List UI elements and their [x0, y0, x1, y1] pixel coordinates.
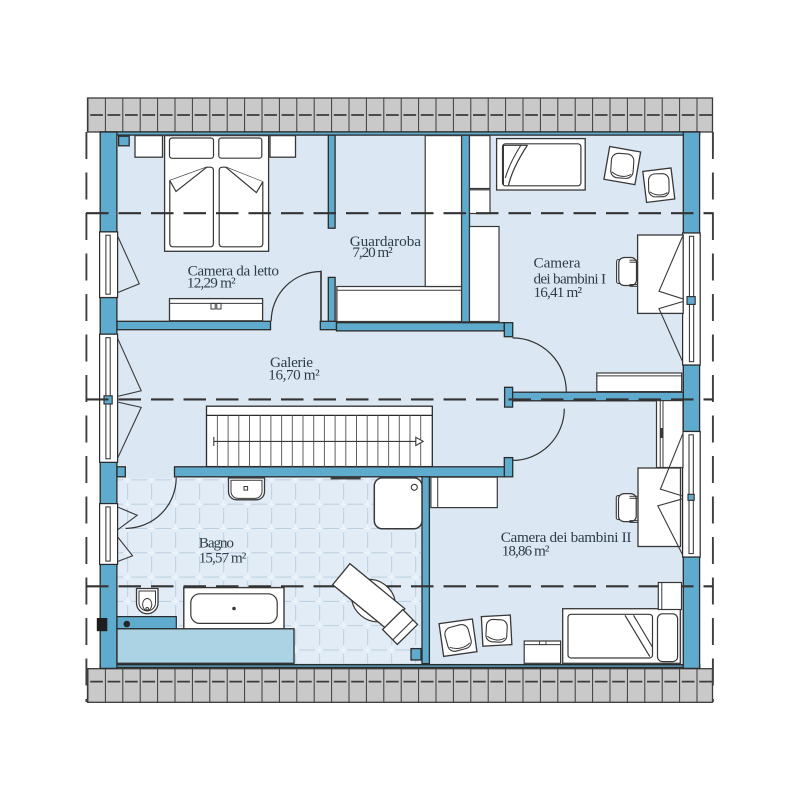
svg-text:12,29 m²: 12,29 m² — [187, 275, 236, 292]
svg-text:7,20 m²: 7,20 m² — [352, 244, 393, 261]
svg-text:15,57 m²: 15,57 m² — [199, 550, 247, 567]
svg-text:Camera: Camera — [534, 255, 581, 272]
svg-text:16,70 m²: 16,70 m² — [268, 367, 320, 384]
svg-text:16,41 m²: 16,41 m² — [534, 284, 583, 301]
svg-text:18,86 m²: 18,86 m² — [502, 543, 550, 560]
